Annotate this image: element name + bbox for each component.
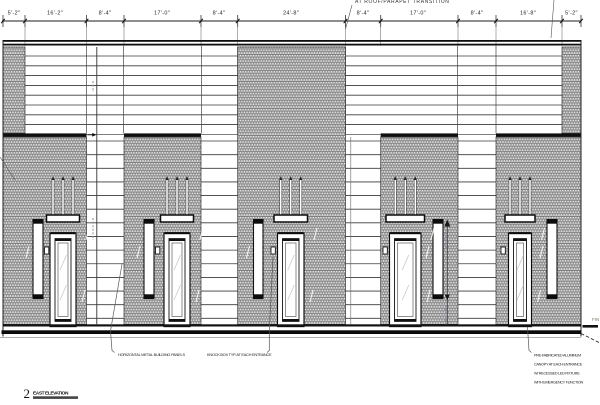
svg-text:2: 2 — [24, 386, 31, 400]
svg-text:5'-2": 5'-2" — [565, 11, 578, 17]
svg-text:WITH EMERGENCY FUNCTION: WITH EMERGENCY FUNCTION — [534, 381, 583, 385]
svg-text:17'-0": 17'-0" — [410, 11, 426, 17]
svg-text:16'-2": 16'-2" — [47, 11, 63, 17]
svg-text:5'-2": 5'-2" — [8, 11, 21, 17]
svg-text:8'-4": 8'-4" — [471, 11, 484, 17]
svg-text:KNOCK BOX TYP. AT EACH ENTRANC: KNOCK BOX TYP. AT EACH ENTRANCE — [207, 352, 272, 357]
svg-text:FIN: FIN — [592, 317, 599, 322]
svg-text:PRE-FABRICATED ALUMINUM: PRE-FABRICATED ALUMINUM — [534, 354, 581, 358]
svg-text:EAST ELEVATION: EAST ELEVATION — [33, 391, 69, 397]
svg-text:AT ROOF/PARAPET TRANSITION: AT ROOF/PARAPET TRANSITION — [355, 0, 450, 5]
svg-text:8'-4": 8'-4" — [213, 11, 226, 17]
svg-text:16'-8": 16'-8" — [520, 11, 536, 17]
svg-text:8'-4": 8'-4" — [357, 11, 370, 17]
svg-text:W/ RECESSED LED FIXTURE: W/ RECESSED LED FIXTURE — [534, 372, 580, 376]
svg-text:HORIZONTAL METAL BUILDING PANE: HORIZONTAL METAL BUILDING PANELS — [118, 352, 185, 357]
svg-text:8'-4": 8'-4" — [99, 11, 112, 17]
svg-text:CANOPY AT EACH ENTRANCE: CANOPY AT EACH ENTRANCE — [534, 363, 583, 367]
svg-text:24'-8": 24'-8" — [283, 11, 299, 17]
svg-text:17'-0": 17'-0" — [154, 11, 170, 17]
